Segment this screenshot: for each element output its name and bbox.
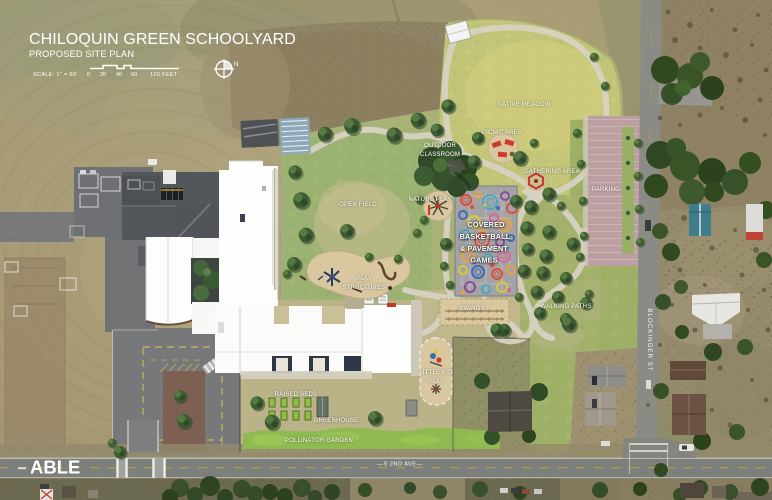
svg-text:PROPOSED SITE PLAN: PROPOSED SITE PLAN [29,49,134,59]
svg-text:GAMES: GAMES [470,256,497,265]
svg-text:PLAY: PLAY [356,276,372,282]
svg-text:LITTLE KID: LITTLE KID [419,370,453,376]
svg-text:GREENHOUSE: GREENHOUSE [314,418,359,424]
svg-text:NATIVE MEADOW: NATIVE MEADOW [497,102,550,108]
svg-text:RAISED BEDS: RAISED BEDS [275,392,318,398]
svg-text:OPEN FIELD: OPEN FIELD [339,202,377,208]
svg-text:BASKETBALL: BASKETBALL [460,232,511,241]
svg-text:PLAY: PLAY [428,379,444,385]
svg-text:0: 0 [87,72,90,78]
svg-text:SCALE: 1" = 60': SCALE: 1" = 60' [33,72,78,78]
svg-text:STRUCTURES: STRUCTURES [342,285,385,291]
svg-text:ABLE: ABLE [30,457,80,478]
svg-text:CLASSROOM: CLASSROOM [420,152,460,158]
svg-text:60: 60 [131,72,137,78]
svg-text:WALKING PATHS: WALKING PATHS [541,304,592,310]
svg-text:GATHERING AREA: GATHERING AREA [524,169,580,175]
svg-text:N: N [234,62,238,68]
svg-text:—S 2ND AVE—: —S 2ND AVE— [377,462,422,468]
svg-text:40: 40 [116,72,122,78]
svg-text:20: 20 [100,72,106,78]
svg-text:BLOCKINGER ST: BLOCKINGER ST [646,308,653,371]
svg-text:CHILOQUIN GREEN SCHOOLYARD: CHILOQUIN GREEN SCHOOLYARD [29,31,296,48]
svg-text:NATURE PLAY: NATURE PLAY [409,197,452,203]
svg-text:120 FEET: 120 FEET [150,72,178,78]
svg-text:SWINGS: SWINGS [459,306,485,312]
svg-text:POLLINATOR GARDEN: POLLINATOR GARDEN [285,438,353,444]
svg-text:PARKING: PARKING [592,187,620,193]
svg-text:COVERED: COVERED [468,220,505,229]
svg-text:OUTDOOR: OUTDOOR [424,143,457,149]
svg-text:PICNIC AREA: PICNIC AREA [482,130,522,136]
svg-text:& PAVEMENT: & PAVEMENT [460,244,508,253]
